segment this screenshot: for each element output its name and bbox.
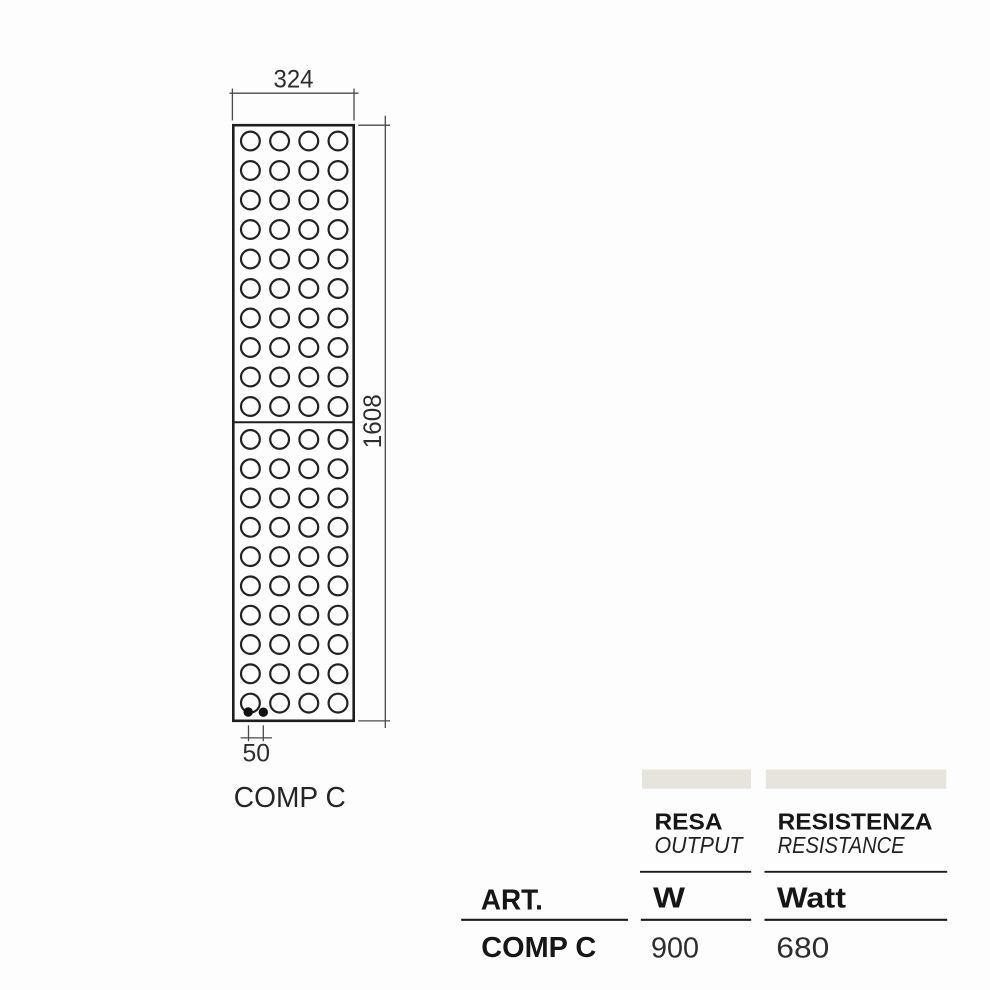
svg-text:OUTPUT: OUTPUT xyxy=(655,832,745,858)
svg-text:RESA: RESA xyxy=(655,809,723,835)
svg-text:900: 900 xyxy=(651,933,699,965)
svg-text:COMP C: COMP C xyxy=(234,782,346,814)
svg-text:ART.: ART. xyxy=(481,885,543,917)
svg-text:1608: 1608 xyxy=(359,394,387,448)
svg-text:324: 324 xyxy=(274,66,314,94)
svg-text:W: W xyxy=(653,883,686,915)
svg-text:RESISTANCE: RESISTANCE xyxy=(778,832,906,858)
svg-text:680: 680 xyxy=(776,933,829,965)
svg-text:COMP C: COMP C xyxy=(481,932,596,964)
svg-text:Watt: Watt xyxy=(777,883,846,915)
svg-text:RESISTENZA: RESISTENZA xyxy=(778,809,933,835)
svg-text:50: 50 xyxy=(243,740,271,768)
